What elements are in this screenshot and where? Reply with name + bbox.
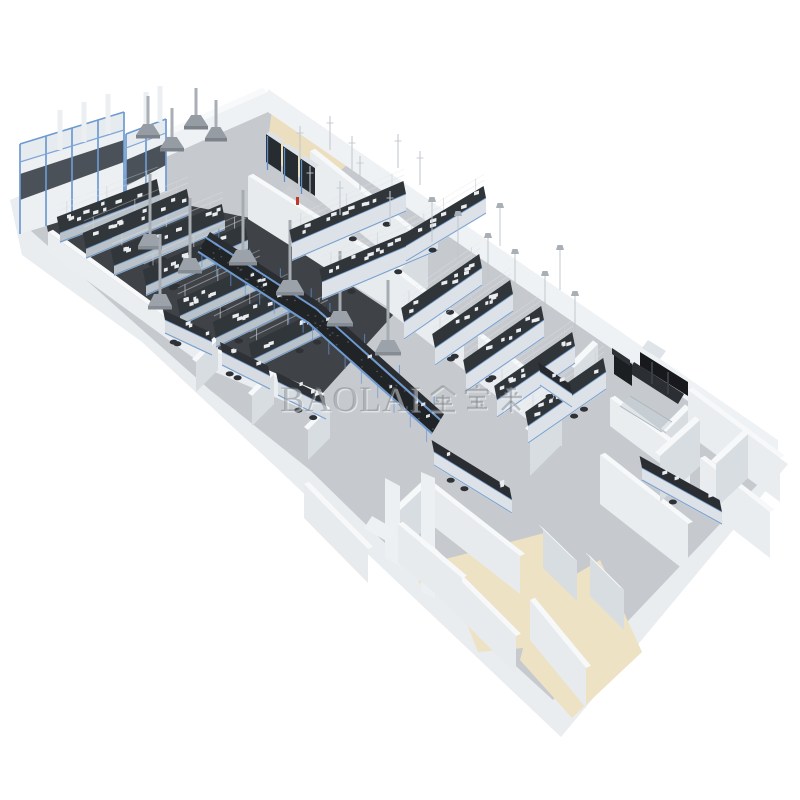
svg-text:BAOLAI: BAOLAI (280, 379, 422, 419)
